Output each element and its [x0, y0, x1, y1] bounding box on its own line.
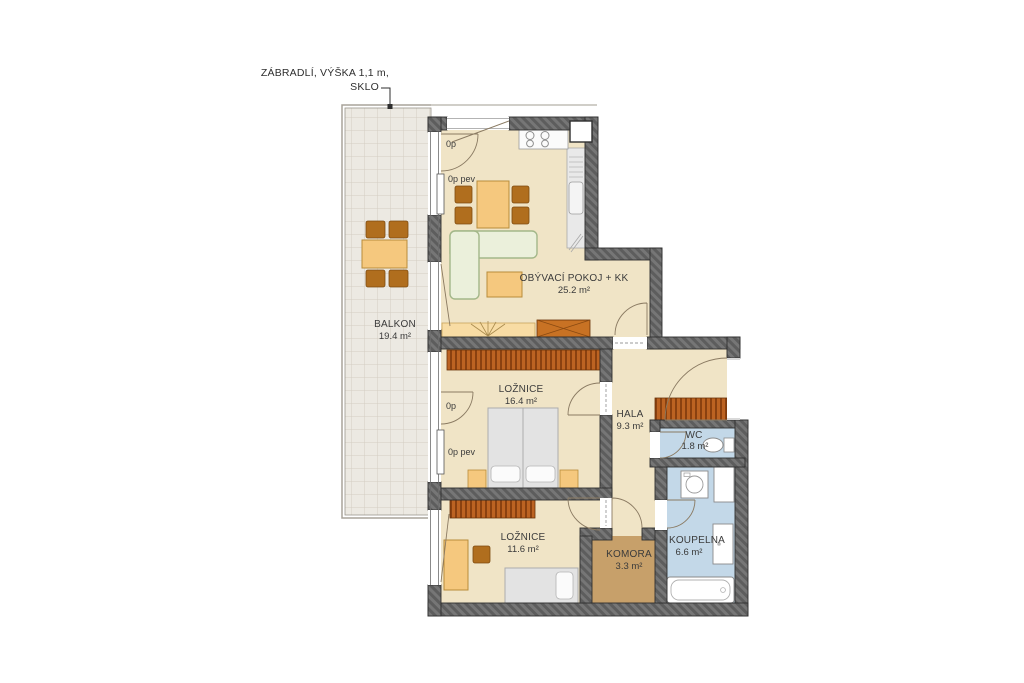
kitchen-sink [569, 182, 583, 214]
floor-plan-drawing: ZÁBRADLÍ, VÝŠKA 1,1 m, SKLO BALKON 19.4 … [0, 0, 1024, 683]
entrance-door-opening [727, 358, 740, 420]
pillow [491, 466, 520, 482]
wall [600, 349, 612, 382]
balcony-door-opening [428, 352, 441, 428]
wall [428, 337, 613, 349]
room-label-hala: HALA [617, 409, 644, 420]
floor-plan-page: ZÁBRADLÍ, VÝŠKA 1,1 m, SKLO BALKON 19.4 … [0, 0, 1024, 683]
wall [650, 458, 745, 467]
dining-chair [512, 186, 529, 203]
nightstand [468, 470, 486, 488]
room-area-wc: 1.8 m² [682, 441, 709, 452]
door-opening [447, 117, 509, 130]
wall [650, 420, 748, 428]
balcony-door-opening [428, 132, 441, 172]
wall [600, 415, 612, 498]
window-label-br-door: 0p [446, 401, 456, 411]
railing-annotation-line2: SKLO [350, 81, 379, 93]
leader-dot [388, 104, 393, 109]
balcony-chair [366, 221, 385, 238]
room-area-balkon: 19.4 m² [379, 331, 411, 342]
toilet-tank [724, 438, 734, 452]
window-label-lr-fixed: 0p pev [448, 174, 476, 184]
wall [647, 337, 740, 349]
desk-chair [473, 546, 490, 563]
leader-line [381, 88, 390, 105]
shaft-box [570, 121, 592, 142]
railing-annotation-line1: ZÁBRADLÍ, VÝŠKA 1,1 m, [261, 66, 389, 79]
bath-cabinet [714, 466, 734, 502]
window-label-lr-door: 0p [446, 139, 456, 149]
wall [580, 536, 592, 603]
dining-chair [455, 207, 472, 224]
window [428, 510, 441, 585]
room-area-loznice1: 16.4 m² [505, 396, 537, 407]
wall [428, 215, 441, 262]
wall [735, 420, 748, 616]
room-area-komora: 3.3 m² [616, 561, 643, 572]
wall [655, 467, 667, 500]
wall [655, 530, 667, 603]
balcony-tiled-floor [345, 108, 431, 515]
wall [727, 337, 740, 358]
balcony-chair [389, 221, 408, 238]
coffee-table [487, 272, 522, 297]
dining-table [477, 181, 509, 228]
bedroom2-wardrobe [450, 500, 535, 518]
room-area-obyvaci: 25.2 m² [558, 285, 590, 296]
wall [428, 482, 441, 510]
balcony-chair [366, 270, 385, 287]
window [428, 262, 441, 330]
room-label-wc: WC [685, 430, 702, 441]
pillow [556, 572, 573, 599]
balcony-table [362, 240, 407, 268]
glazing-bar [437, 174, 444, 214]
pillow [526, 466, 555, 482]
glazing-bar [437, 430, 444, 474]
desk [444, 540, 468, 590]
room-area-loznice2: 11.6 m² [507, 544, 539, 555]
room-area-hala: 9.3 m² [617, 421, 644, 432]
room-area-koupelna: 6.6 m² [676, 547, 703, 558]
bathtub [667, 577, 734, 603]
room-label-obyvaci: OBÝVACÍ POKOJ + KK [520, 271, 629, 284]
room-label-koupelna: KOUPELNA [669, 535, 725, 546]
room-label-komora: KOMORA [606, 549, 652, 560]
door-opening [650, 432, 660, 458]
washing-machine [681, 471, 708, 498]
wall [428, 585, 441, 616]
nightstand [560, 470, 578, 488]
dining-chair [512, 207, 529, 224]
balcony-chair [389, 270, 408, 287]
room-label-loznice1: LOŽNICE [499, 382, 544, 395]
room-label-loznice2: LOŽNICE [501, 530, 546, 543]
dining-chair [455, 186, 472, 203]
window-label-br-fixed: 0p pev [448, 447, 476, 457]
wall [428, 117, 441, 132]
bedroom1-wardrobe [447, 350, 600, 370]
room-label-balkon: BALKON [374, 319, 416, 330]
door-opening [655, 500, 667, 530]
annotation-leader [381, 88, 393, 109]
floor-living-room [585, 260, 650, 337]
sofa-chaise [450, 231, 479, 299]
wall [650, 248, 662, 349]
wall [428, 330, 441, 352]
wall [650, 420, 660, 432]
floor-hall-corridor [612, 420, 655, 540]
wall [428, 603, 748, 616]
